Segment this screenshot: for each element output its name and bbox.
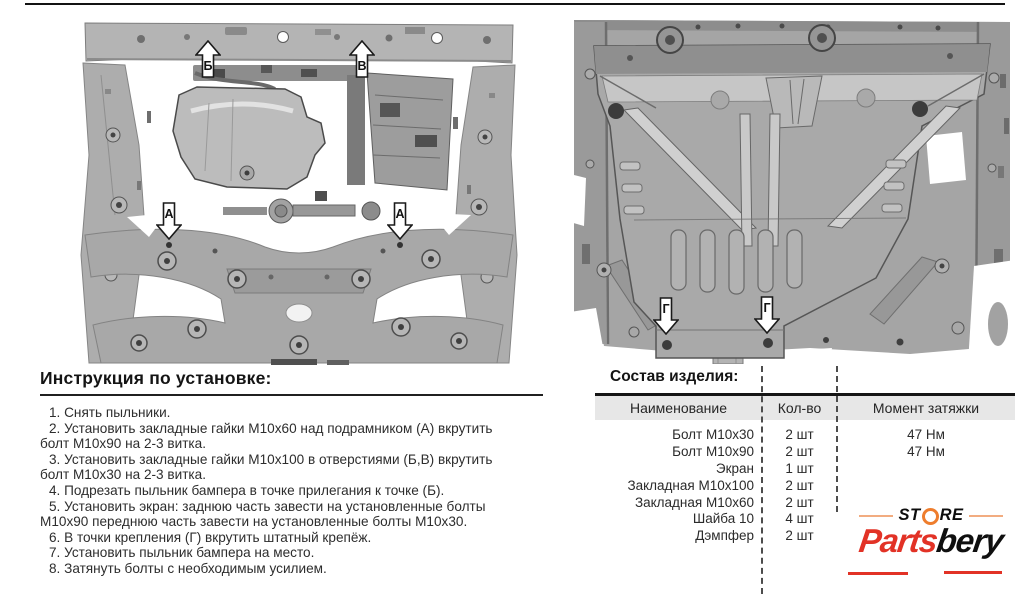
callout-label-v: В — [357, 59, 366, 73]
skid-plate-graphic — [570, 14, 1015, 364]
part-qty: 2 шт — [762, 495, 837, 510]
callout-arrow-a-right: А — [387, 202, 413, 240]
table-row: Болт М10х90 2 шт 47 Нм — [595, 443, 1015, 460]
callout-label-a-right: А — [395, 207, 404, 221]
part-qty: 2 шт — [762, 444, 837, 459]
logo-right-line — [969, 515, 1003, 517]
col-header-qty: Кол-во — [762, 400, 837, 416]
part-name: Закладная М10х60 — [595, 495, 762, 510]
parts-list-title: Состав изделия: — [610, 368, 1015, 386]
instructions-title-rule — [40, 394, 543, 396]
callout-arrow-g-right: Г — [754, 296, 780, 334]
step-8: 8. Затянуть болты с необходимым усилием. — [40, 561, 510, 577]
underbody-photo-graphic — [75, 15, 523, 365]
step-3: 3. Установить закладные гайки М10х100 в … — [40, 452, 510, 483]
part-qty: 4 шт — [762, 511, 837, 526]
step-7: 7. Установить пыльник бампера на место. — [40, 545, 510, 561]
logo-brand-parts: Parts — [857, 522, 940, 559]
col-header-torque: Момент затяжки — [837, 400, 1015, 416]
step-6: 6. В точки крепления (Г) вкрутить штатны… — [40, 530, 510, 546]
instruction-sheet: Б В А А Г Г Инструкция по установке: 1. … — [0, 0, 1024, 600]
callout-label-g-left: Г — [662, 302, 669, 316]
table-column-divider-2 — [836, 366, 838, 512]
part-name: Болт М10х90 — [595, 444, 762, 459]
part-qty: 2 шт — [762, 478, 837, 493]
step-4: 4. Подрезать пыльник бампера в точке при… — [40, 483, 510, 499]
logo-brand-bery: bery — [934, 522, 1005, 559]
instructions-steps: 1. Снять пыльники. 2. Установить закладн… — [40, 405, 510, 577]
callout-label-b: Б — [204, 59, 213, 73]
callout-arrow-g-left: Г — [653, 297, 679, 335]
table-row: Закладная М10х100 2 шт — [595, 477, 1015, 494]
col-header-name: Наименование — [595, 400, 762, 416]
installation-instructions: Инструкция по установке: 1. Снять пыльни… — [40, 368, 545, 577]
part-name: Закладная М10х100 — [595, 478, 762, 493]
part-qty: 2 шт — [762, 528, 837, 543]
table-row: Болт М10х30 2 шт 47 Нм — [595, 427, 1015, 444]
part-name: Дэмпфер — [595, 528, 762, 543]
part-qty: 2 шт — [762, 427, 837, 442]
table-row: Экран 1 шт — [595, 460, 1015, 477]
step-5: 5. Установить экран: заднюю часть завест… — [40, 499, 510, 530]
skid-plate-drawing — [570, 14, 1015, 364]
parts-table-header: Наименование Кол-во Момент затяжки — [595, 396, 1015, 420]
callout-arrow-a-left: А — [156, 202, 182, 240]
part-torque: 47 Нм — [837, 427, 1015, 442]
step-2: 2. Установить закладные гайки М10х60 над… — [40, 421, 510, 452]
callout-label-g-right: Г — [763, 301, 770, 315]
table-column-divider-1 — [761, 366, 763, 594]
callout-label-a-left: А — [164, 207, 173, 221]
part-name: Экран — [595, 461, 762, 476]
part-name: Шайба 10 — [595, 511, 762, 526]
part-torque: 47 Нм — [837, 444, 1015, 459]
callout-arrow-b: Б — [195, 40, 221, 78]
callout-arrow-v: В — [349, 40, 375, 78]
part-name: Болт М10х30 — [595, 427, 762, 442]
logo-underline-left — [848, 572, 908, 575]
top-divider-rule — [25, 3, 1005, 5]
instructions-title: Инструкция по установке: — [40, 368, 545, 389]
car-underbody-photo — [75, 15, 523, 365]
logo-left-line — [859, 515, 893, 517]
partsbery-logo: ST RE Partsbery — [842, 506, 1020, 584]
part-qty: 1 шт — [762, 461, 837, 476]
step-1: 1. Снять пыльники. — [40, 405, 510, 421]
logo-brand-name: Partsbery — [839, 522, 1022, 560]
logo-underline-right — [944, 571, 1002, 574]
